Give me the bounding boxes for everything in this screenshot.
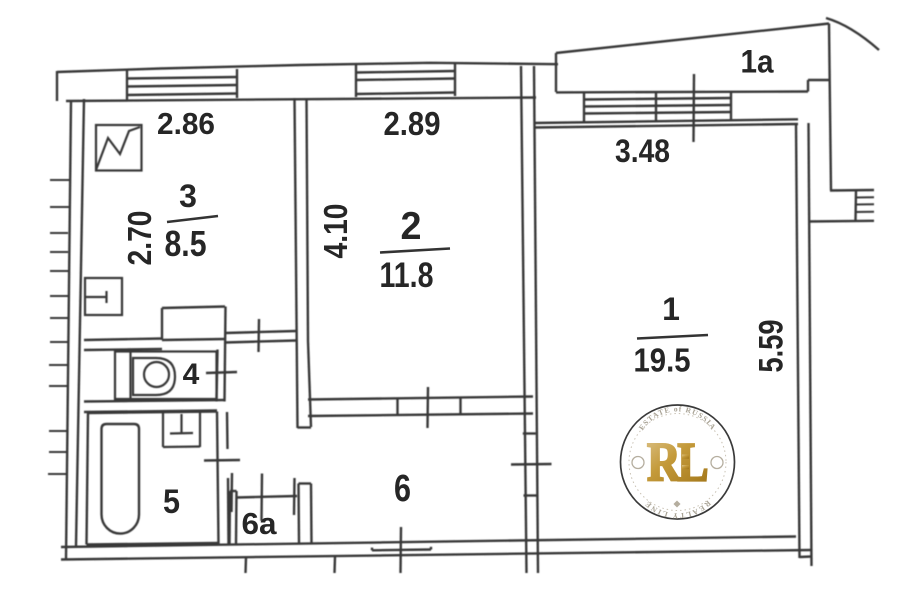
svg-text:3: 3 [179, 178, 197, 214]
svg-text:5: 5 [163, 483, 180, 521]
svg-text:5.59: 5.59 [753, 320, 791, 373]
svg-text:8.5: 8.5 [165, 223, 207, 264]
svg-text:2.70: 2.70 [121, 211, 158, 266]
svg-text:4.10: 4.10 [317, 204, 354, 259]
svg-text:11.8: 11.8 [380, 256, 434, 295]
svg-text:19.5: 19.5 [634, 342, 691, 379]
svg-text:3.48: 3.48 [615, 133, 670, 169]
svg-text:2.89: 2.89 [384, 105, 441, 142]
svg-text:RL: RL [647, 433, 707, 493]
svg-text:2: 2 [401, 205, 422, 248]
svg-text:4: 4 [183, 358, 200, 391]
svg-text:1a: 1a [741, 44, 774, 80]
svg-text:1: 1 [662, 291, 680, 327]
svg-text:2.86: 2.86 [157, 106, 215, 141]
svg-text:6: 6 [394, 468, 411, 510]
svg-text:6a: 6a [242, 506, 278, 541]
